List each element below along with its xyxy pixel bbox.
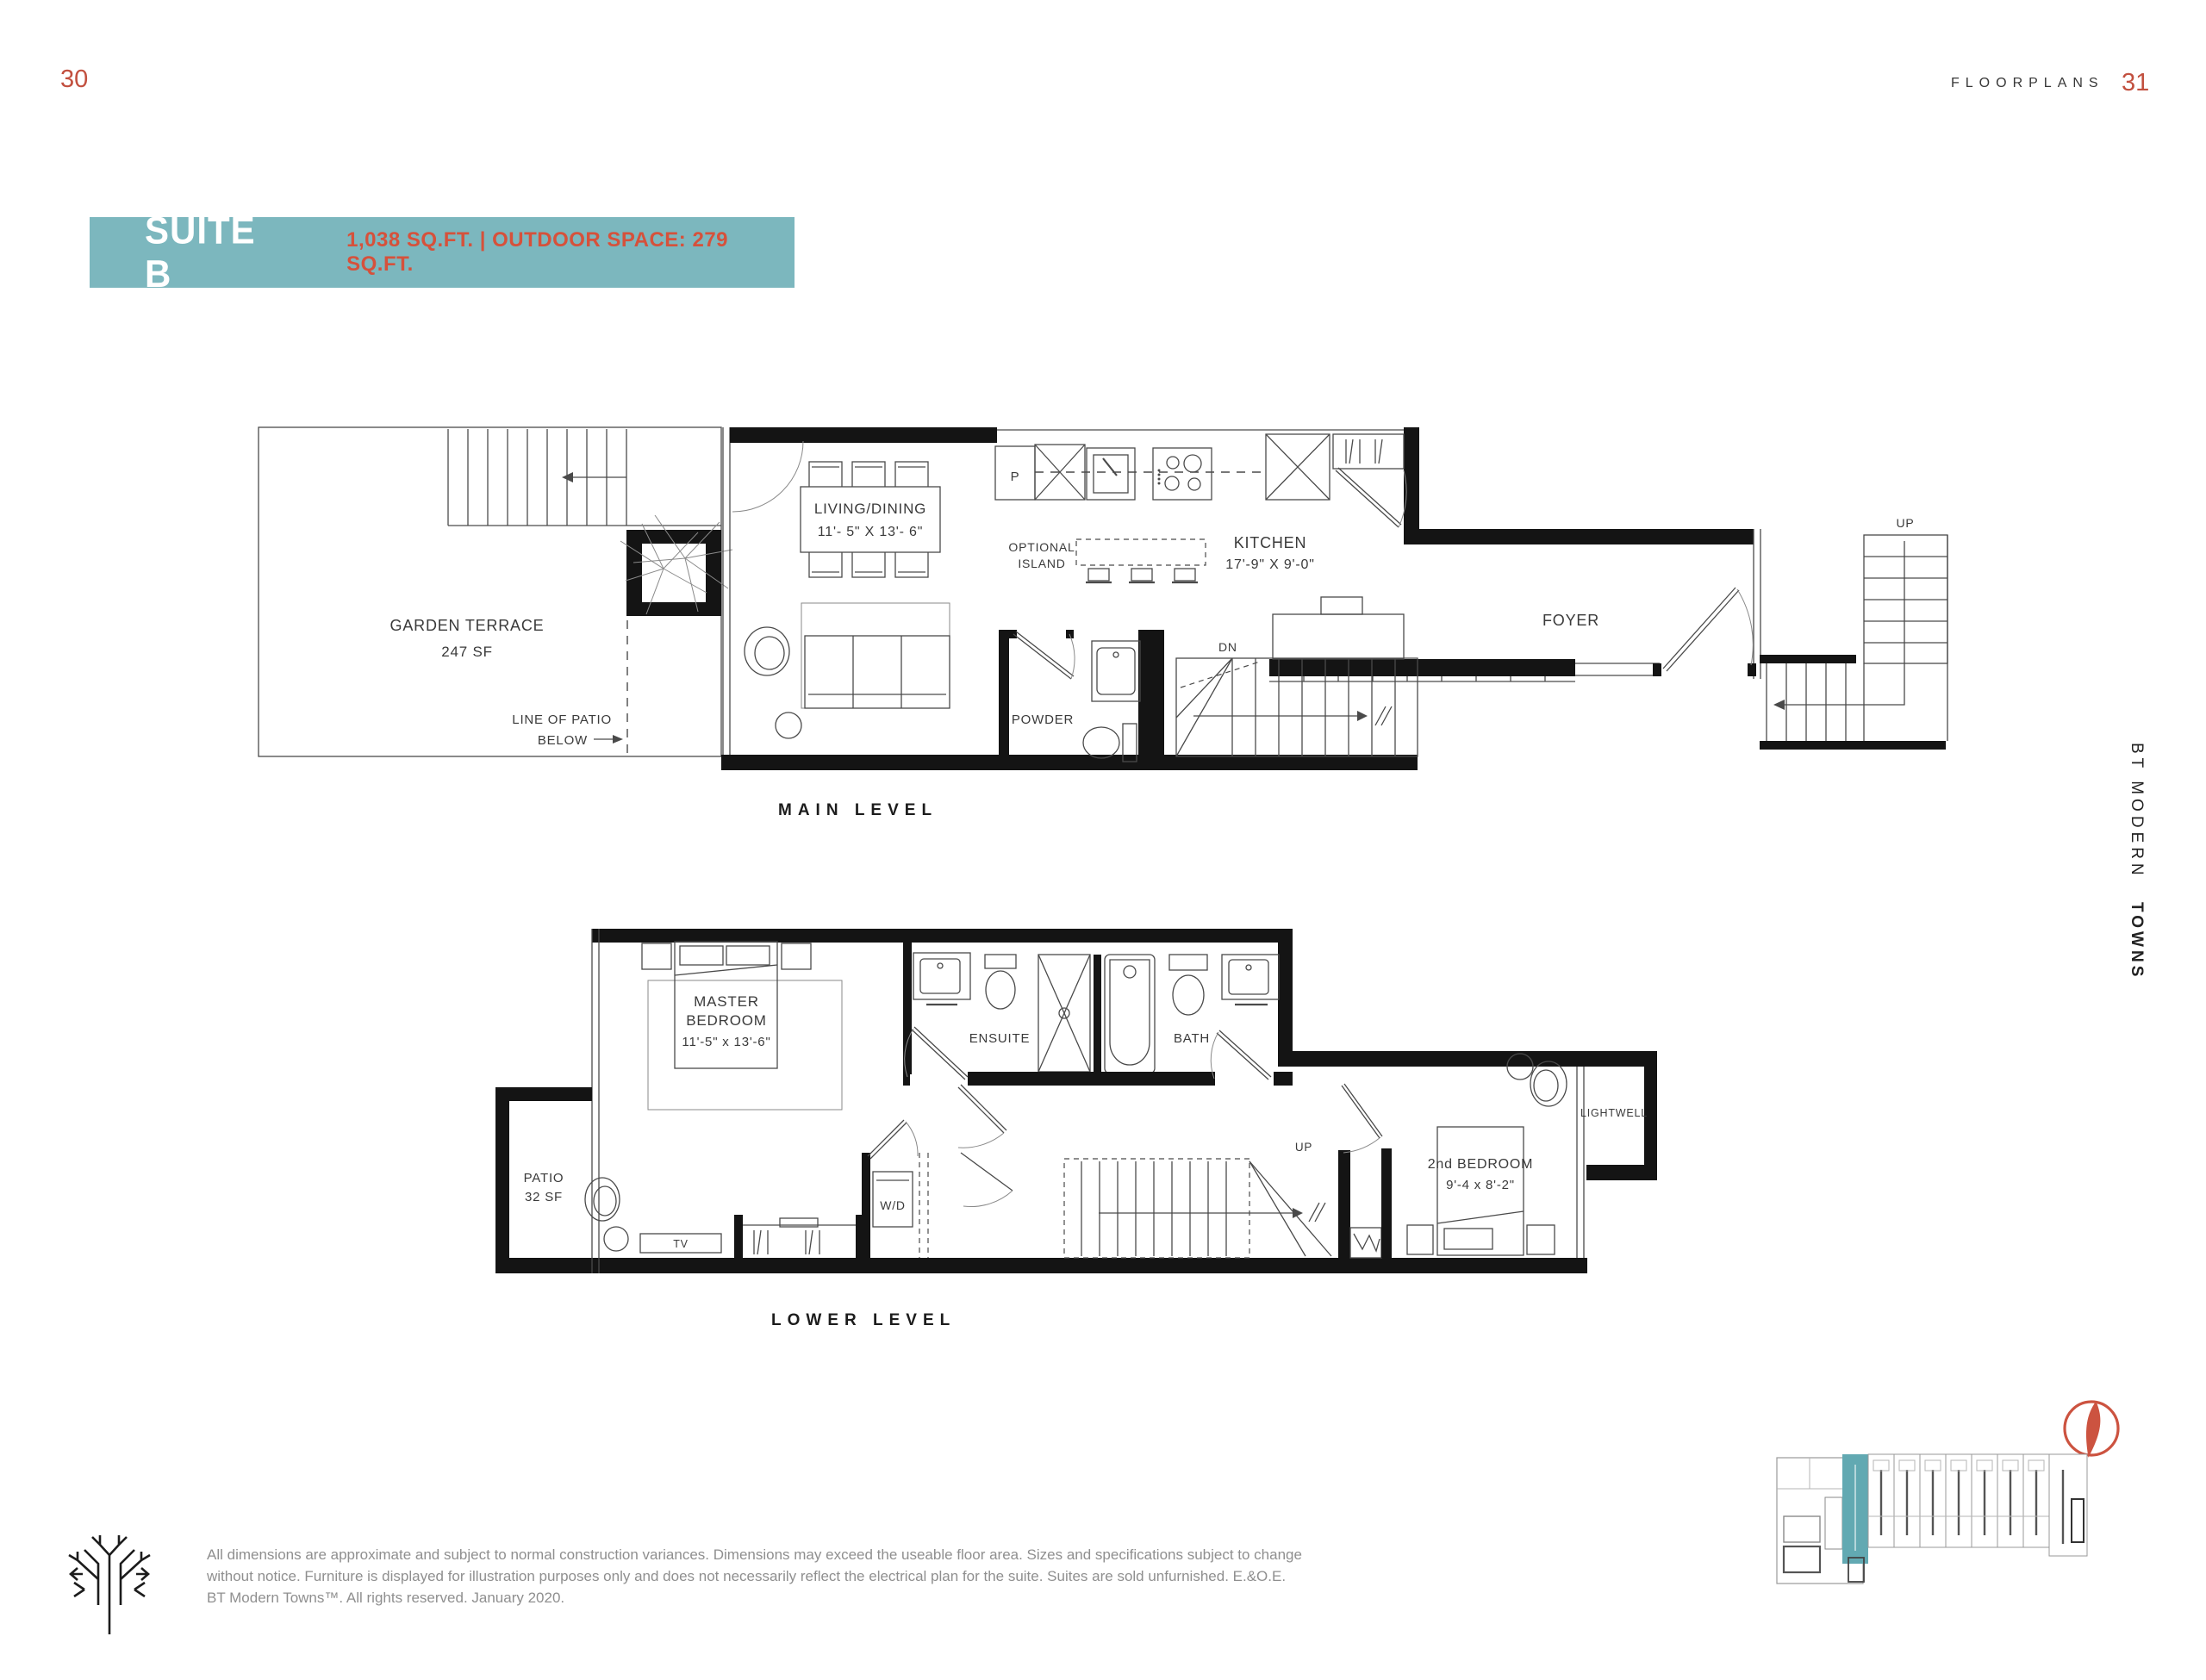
disclaimer-line: without notice. Furniture is displayed f… xyxy=(207,1565,1344,1587)
planter xyxy=(620,515,732,616)
brand-name: BT MODERN xyxy=(2128,743,2146,880)
armchair xyxy=(745,627,789,675)
disclaimer-line: BT Modern Towns™. All rights reserved. J… xyxy=(207,1587,1344,1608)
ensuite-sink-icon xyxy=(913,953,970,1005)
shower-icon xyxy=(1038,955,1090,1072)
compass-icon xyxy=(2065,1401,2118,1459)
living-dining-label: LIVING/DINING xyxy=(814,501,926,517)
garden-terrace-label: GARDEN TERRACE xyxy=(390,617,545,634)
svg-text:PATIO: PATIO xyxy=(524,1171,564,1185)
bath-sink-icon xyxy=(1222,955,1279,1005)
suite-banner: SUITE B 1,038 SQ.FT. | OUTDOOR SPACE: 27… xyxy=(90,217,795,288)
bath-toilet-icon xyxy=(1169,955,1207,1015)
dn-arrow-icon xyxy=(1357,711,1368,721)
siteplan xyxy=(1777,1454,2087,1584)
line-of-patio-label: LINE OF PATIO xyxy=(512,712,612,727)
bedroom-door xyxy=(1342,1084,1382,1153)
terrace-door-swing xyxy=(732,441,803,512)
patio-arrow-icon xyxy=(613,735,623,744)
utility-closet xyxy=(1350,1228,1381,1258)
kitchen-cabinets: P xyxy=(995,434,1406,527)
page-number-right: 31 xyxy=(2122,69,2149,97)
lower-level-caption: LOWER LEVEL xyxy=(771,1311,956,1330)
ensuite-label: ENSUITE xyxy=(969,1031,1031,1046)
brochure-page: 30 FLOORPLANS 31 SUITE B 1,038 SQ.FT. | … xyxy=(0,0,2206,1680)
line-of-patio-label2: BELOW xyxy=(538,733,588,748)
kitchen-label: KITCHEN xyxy=(1234,534,1307,551)
brand-name-bold: TOWNS xyxy=(2128,902,2146,980)
up-label: UP xyxy=(1896,516,1914,530)
dn-label: DN xyxy=(1218,640,1237,654)
lower-up-label: UP xyxy=(1295,1141,1312,1154)
sofa xyxy=(801,603,950,708)
ensuite-door xyxy=(905,1027,968,1080)
cooktop-icon xyxy=(1153,448,1212,500)
entry-door xyxy=(1653,588,1756,676)
bath-label: BATH xyxy=(1174,1031,1210,1046)
powder-room: POWDER xyxy=(999,630,1164,762)
laundry-closet: W/D xyxy=(862,1120,928,1258)
up-arrow-icon xyxy=(1773,700,1785,710)
powder-label: POWDER xyxy=(1012,712,1074,727)
pantry-label: P xyxy=(1011,470,1020,484)
bedroom-chair xyxy=(1530,1061,1567,1106)
lightwell-label: LIGHTWELL xyxy=(1580,1107,1648,1119)
ensuite: ENSUITE xyxy=(903,941,1101,1074)
terrace-stairs xyxy=(448,429,721,526)
master-bedroom: MASTER BEDROOM 11'-5" x 13'-6" TV xyxy=(585,942,864,1258)
powder-sink-icon xyxy=(1092,641,1140,701)
bath-door xyxy=(1211,1030,1271,1080)
svg-text:ISLAND: ISLAND xyxy=(1018,557,1065,570)
garden-terrace: GARDEN TERRACE 247 SF LINE OF PATIO BELO… xyxy=(259,427,732,756)
suite-area-details: 1,038 SQ.FT. | OUTDOOR SPACE: 279 SQ.FT. xyxy=(346,228,795,277)
master-bedroom-label: MASTER xyxy=(694,993,759,1010)
second-bedroom-dimensions: 9'-4 x 8'-2" xyxy=(1446,1178,1515,1192)
stairs-up: UP xyxy=(1064,1141,1392,1258)
optional-island: OPTIONAL ISLAND xyxy=(1008,539,1206,582)
main-level-walls xyxy=(721,427,1760,770)
fridge-icon xyxy=(1266,434,1330,500)
garden-terrace-area: 247 SF xyxy=(441,644,493,660)
tv-label: TV xyxy=(673,1238,689,1250)
brand-sidebar: BT MODERNTOWNS xyxy=(2127,743,2146,980)
header-section-label: FLOORPLANS xyxy=(1951,76,2104,91)
main-level-floorplan: GARDEN TERRACE 247 SF LINE OF PATIO BELO… xyxy=(250,420,1965,791)
bedroom-chair xyxy=(585,1178,620,1221)
bathtub-icon xyxy=(1105,955,1155,1073)
sink-icon xyxy=(1103,458,1117,476)
stairs-down: DN xyxy=(1176,640,1418,756)
suite-name: SUITE B xyxy=(145,209,291,296)
kitchen-dimensions: 17'-9" X 9'-0" xyxy=(1225,557,1314,572)
second-bedroom-label: 2nd BEDROOM xyxy=(1428,1157,1534,1172)
ensuite-toilet-icon xyxy=(985,955,1016,1009)
hall-doors xyxy=(958,1085,1013,1207)
main-level-caption: MAIN LEVEL xyxy=(778,801,938,820)
disclaimer: All dimensions are approximate and subje… xyxy=(207,1544,1344,1608)
master-closet xyxy=(734,1215,864,1258)
lower-patio: PATIO 32 SF xyxy=(495,1087,592,1273)
developer-logo-tree-icon xyxy=(45,1529,174,1637)
svg-text:32 SF: 32 SF xyxy=(525,1190,563,1204)
keyplan xyxy=(1758,1387,2154,1602)
washer-dryer-label: W/D xyxy=(880,1198,906,1212)
side-table xyxy=(776,712,801,738)
lower-level-floorplan: PATIO 32 SF MASTER BEDROOM 11'-5" x 13'-… xyxy=(495,922,1728,1284)
foyer-label: FOYER xyxy=(1542,612,1599,629)
svg-text:OPTIONAL: OPTIONAL xyxy=(1008,540,1075,554)
svg-text:BEDROOM: BEDROOM xyxy=(686,1012,766,1029)
dining-set: LIVING/DINING 11'- 5" X 13'- 6" xyxy=(801,462,940,577)
disclaimer-line: All dimensions are approximate and subje… xyxy=(207,1544,1344,1565)
master-bedroom-dimensions: 11'-5" x 13'-6" xyxy=(682,1035,770,1049)
page-number-left: 30 xyxy=(60,65,88,94)
common-stairs-up: UP xyxy=(1760,516,1947,750)
foyer-closet xyxy=(1333,434,1406,527)
bedroom-ottoman xyxy=(604,1227,628,1251)
living-dining-dimensions: 11'- 5" X 13'- 6" xyxy=(818,525,923,539)
